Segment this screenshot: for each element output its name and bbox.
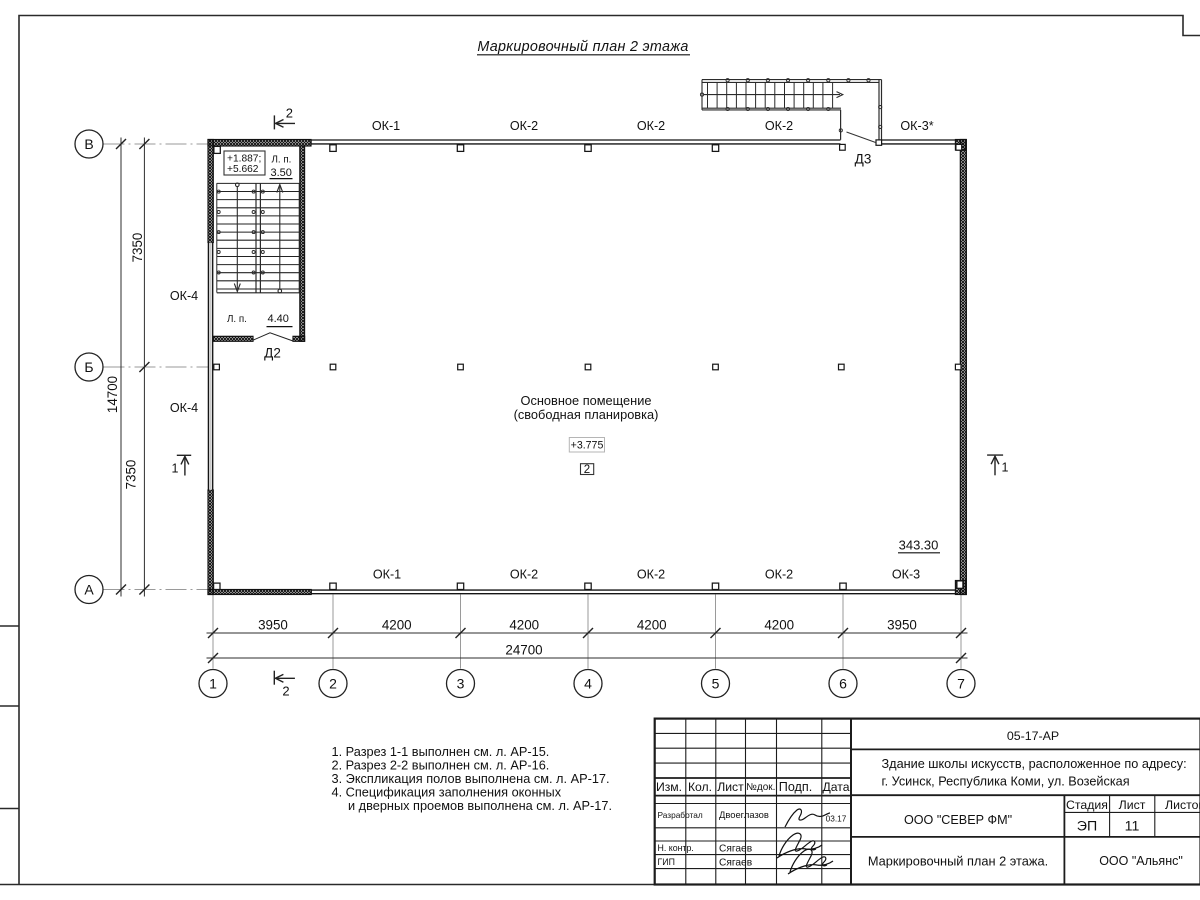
svg-text:Основное помещение: Основное помещение — [521, 393, 652, 408]
svg-text:ЭП: ЭП — [1077, 819, 1097, 835]
svg-text:Подп.: Подп. — [779, 780, 812, 794]
svg-text:Листов: Листов — [1165, 798, 1200, 812]
svg-text:Д2: Д2 — [264, 346, 281, 361]
svg-text:ООО "СЕВЕР ФМ": ООО "СЕВЕР ФМ" — [904, 813, 1012, 827]
svg-text:А: А — [84, 582, 94, 598]
svg-text:ОК-2: ОК-2 — [637, 119, 665, 133]
svg-text:Кол.: Кол. — [688, 780, 712, 794]
svg-text:Н. контр.: Н. контр. — [658, 843, 694, 853]
svg-text:Разработал: Разработал — [658, 810, 703, 820]
svg-text:Здание школы искусств, располо: Здание школы искусств, расположенное по … — [882, 757, 1187, 771]
svg-text:Изм.: Изм. — [656, 780, 682, 794]
svg-text:7350: 7350 — [130, 233, 145, 263]
svg-text:4200: 4200 — [637, 618, 667, 633]
svg-text:3950: 3950 — [258, 618, 288, 633]
svg-text:1: 1 — [1002, 461, 1009, 475]
svg-text:Сягаев: Сягаев — [719, 844, 752, 855]
svg-text:Двоеглазов: Двоеглазов — [719, 809, 769, 820]
svg-text:ОК-2: ОК-2 — [765, 568, 793, 582]
svg-text:Дата: Дата — [823, 780, 850, 794]
svg-text:+1.887;: +1.887; — [227, 154, 261, 165]
svg-text:3950: 3950 — [887, 618, 917, 633]
svg-text:ОК-2: ОК-2 — [765, 119, 793, 133]
svg-text:4200: 4200 — [509, 618, 539, 633]
svg-text:ОК-2: ОК-2 — [637, 568, 665, 582]
svg-text:24700: 24700 — [505, 643, 542, 658]
svg-text:3.50: 3.50 — [271, 167, 292, 179]
svg-text:ОК-1: ОК-1 — [373, 568, 401, 582]
svg-text:4200: 4200 — [382, 618, 412, 633]
svg-text:2: 2 — [282, 684, 289, 699]
svg-text:03.17: 03.17 — [826, 814, 847, 824]
svg-text:ОК-4: ОК-4 — [170, 401, 198, 415]
svg-text:+5.662: +5.662 — [227, 164, 259, 175]
svg-text:4.40: 4.40 — [268, 313, 289, 325]
svg-text:ГИП: ГИП — [658, 857, 675, 867]
svg-text:ОК-3*: ОК-3* — [900, 119, 933, 133]
svg-text:Стадия: Стадия — [1066, 798, 1108, 812]
svg-text:Маркировочный план 2 этажа.: Маркировочный план 2 этажа. — [868, 854, 1048, 869]
svg-text:3: 3 — [457, 676, 465, 692]
svg-text:ОК-2: ОК-2 — [510, 568, 538, 582]
svg-text:7: 7 — [957, 676, 965, 692]
svg-text:Л. п.: Л. п. — [272, 155, 292, 166]
svg-text:1: 1 — [209, 676, 217, 692]
svg-text:2: 2 — [584, 464, 590, 476]
svg-text:Б: Б — [84, 359, 93, 375]
svg-text:ОК-3: ОК-3 — [892, 568, 920, 582]
svg-text:№док.: №док. — [746, 782, 775, 793]
svg-text:+3.775: +3.775 — [571, 440, 604, 452]
svg-text:Л. п.: Л. п. — [227, 314, 247, 325]
svg-text:2: 2 — [286, 106, 293, 121]
svg-text:ОК-2: ОК-2 — [510, 119, 538, 133]
svg-text:и дверных проемов выполнена см: и дверных проемов выполнена см. л. АР-17… — [348, 798, 612, 813]
svg-text:4200: 4200 — [764, 618, 794, 633]
svg-text:ОК-4: ОК-4 — [170, 289, 198, 303]
svg-text:Лист: Лист — [1119, 798, 1146, 812]
svg-text:Маркировочный план 2 этажа: Маркировочный план 2 этажа — [477, 39, 688, 55]
svg-text:7350: 7350 — [124, 460, 139, 490]
svg-text:4: 4 — [584, 676, 592, 692]
svg-text:(свободная планировка): (свободная планировка) — [514, 407, 659, 422]
svg-text:2: 2 — [329, 676, 337, 692]
svg-text:1: 1 — [172, 462, 179, 476]
svg-text:Лист: Лист — [717, 780, 744, 794]
svg-text:11: 11 — [1125, 819, 1140, 835]
svg-text:Д3: Д3 — [855, 152, 872, 167]
svg-text:05-17-АР: 05-17-АР — [1007, 729, 1059, 743]
svg-text:ОК-1: ОК-1 — [372, 119, 400, 133]
svg-text:ООО "Альянс": ООО "Альянс" — [1099, 854, 1183, 868]
svg-text:г. Усинск, Республика Коми, ул: г. Усинск, Республика Коми, ул. Возейска… — [882, 775, 1130, 789]
svg-text:5: 5 — [712, 676, 720, 692]
svg-text:6: 6 — [839, 676, 847, 692]
svg-text:14700: 14700 — [105, 376, 120, 413]
svg-text:Сягаев: Сягаев — [719, 858, 752, 869]
svg-text:343.30: 343.30 — [899, 538, 939, 553]
svg-text:В: В — [84, 136, 93, 152]
